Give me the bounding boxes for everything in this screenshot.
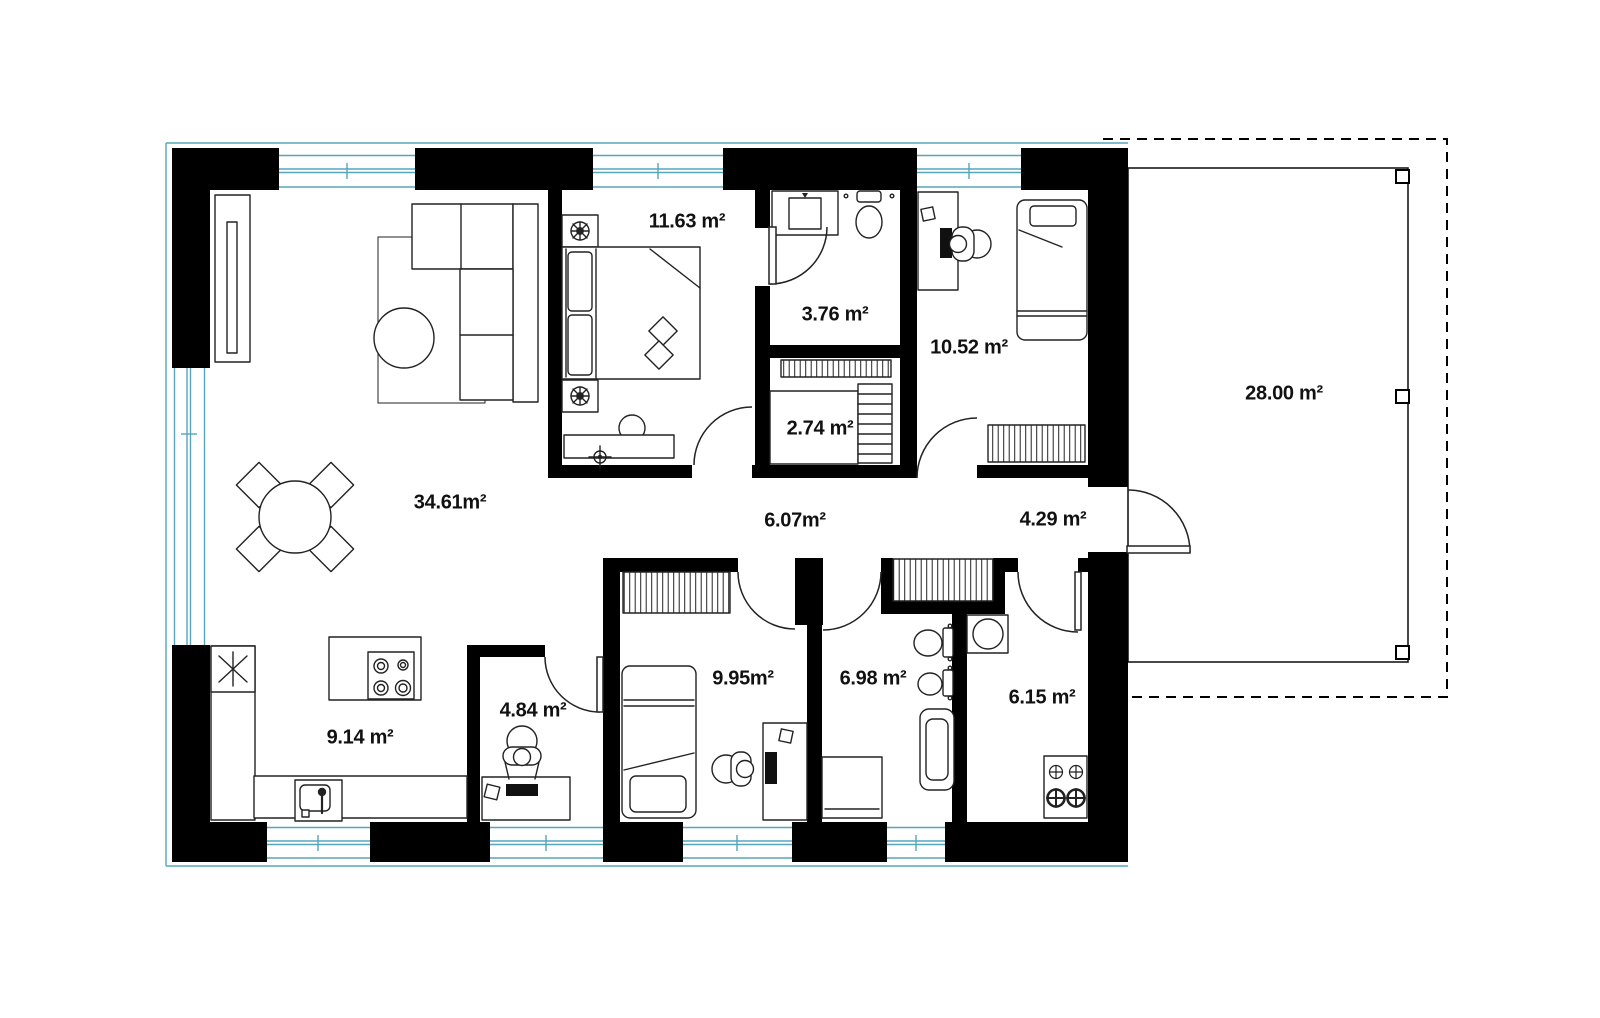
- toilet: [844, 191, 894, 238]
- pillow: [568, 252, 592, 311]
- desk-person: [712, 723, 807, 820]
- window-bedroom-main: [593, 156, 723, 188]
- window-kitchen: [267, 828, 370, 859]
- pillow: [568, 315, 592, 375]
- room-area-label-utility-room: 6.15 m²: [1009, 687, 1076, 710]
- dressing-table: [564, 415, 674, 468]
- room-area-label-living-room: 34.61m²: [414, 492, 486, 515]
- window-bedroom-right: [917, 156, 1021, 188]
- window-office: [490, 828, 603, 859]
- paper: [779, 729, 793, 743]
- door-utility: [1018, 572, 1081, 632]
- bidet: [918, 666, 953, 700]
- room-area-label-hallway-entry: 4.29 m²: [1020, 509, 1087, 532]
- room-area-label-bedroom-bottom: 9.95m²: [712, 668, 774, 691]
- wardrobe-rail: [623, 572, 730, 613]
- kitchen-counter-bottom: [254, 776, 467, 818]
- terrace-roof-dashed-outline: [1103, 139, 1447, 697]
- hanging-rail: [781, 360, 891, 377]
- single-bed: [622, 666, 696, 818]
- paper: [484, 784, 500, 800]
- room-area-label-bedroom-main: 11.63 m²: [649, 211, 726, 234]
- nightstand: [562, 380, 598, 412]
- door-bedroom-bottom: [738, 572, 795, 629]
- terrace-post: [1396, 170, 1409, 183]
- kitchen-sink: [295, 780, 342, 821]
- toilet: [914, 624, 953, 661]
- wardrobe-rail: [988, 425, 1085, 462]
- tv-cabinet: [215, 195, 250, 362]
- kitchen-island-stove: [329, 637, 421, 700]
- double-bed: [562, 247, 700, 379]
- room-area-label-bedroom-right: 10.52 m²: [930, 337, 1008, 360]
- kitchen-counter-left: [211, 646, 255, 820]
- paper: [921, 207, 935, 221]
- person-head: [950, 236, 967, 253]
- window-living-top: [279, 156, 415, 188]
- window-bedroom-bottom: [683, 828, 792, 859]
- utility-sink: [967, 615, 1008, 653]
- door-bathroom-large: [823, 572, 881, 630]
- office-desk-person: [482, 726, 570, 820]
- coffee-table: [374, 308, 434, 368]
- room-area-label-bathroom-large: 6.98 m²: [840, 668, 907, 691]
- laptop: [765, 752, 777, 784]
- window-living-left: [175, 368, 205, 645]
- person-head: [514, 749, 531, 766]
- door-bedroom-right: [917, 418, 977, 478]
- washing-machine: [822, 757, 882, 818]
- terrace-area: [1103, 139, 1447, 697]
- terrace-post: [1396, 646, 1409, 659]
- room-area-label-wardrobe: 2.74 m²: [787, 418, 854, 441]
- laundry-stove-unit: [1044, 756, 1087, 818]
- pillow: [1030, 206, 1076, 226]
- floor-plan: 34.61m² 11.63 m² 3.76 m² 2.74 m² 10.52 m…: [0, 0, 1600, 1018]
- person-head: [737, 761, 754, 778]
- wardrobe-interior: [770, 360, 892, 464]
- dining-set: [236, 462, 353, 571]
- nightstand: [562, 215, 598, 247]
- washbasin: [772, 191, 838, 235]
- window-bathroom-large: [887, 828, 945, 859]
- shower: [920, 709, 954, 790]
- sofa: [412, 204, 538, 402]
- laptop: [506, 784, 538, 796]
- room-area-label-office: 4.84 m²: [500, 700, 567, 723]
- entrance-door: [1127, 490, 1190, 553]
- terrace-floor: [1128, 168, 1408, 662]
- room-area-label-kitchen: 9.14 m²: [327, 727, 394, 750]
- dining-table: [259, 481, 331, 553]
- terrace-post: [1396, 390, 1409, 403]
- desk-person: [918, 192, 991, 290]
- room-area-label-hallway-main: 6.07m²: [764, 510, 826, 533]
- room-area-label-terrace: 28.00 m²: [1245, 383, 1323, 406]
- single-bed: [1017, 200, 1087, 340]
- room-area-label-bathroom-small: 3.76 m²: [802, 304, 869, 327]
- door-bedroom-main: [694, 407, 752, 465]
- hall-closet-rail: [893, 559, 993, 601]
